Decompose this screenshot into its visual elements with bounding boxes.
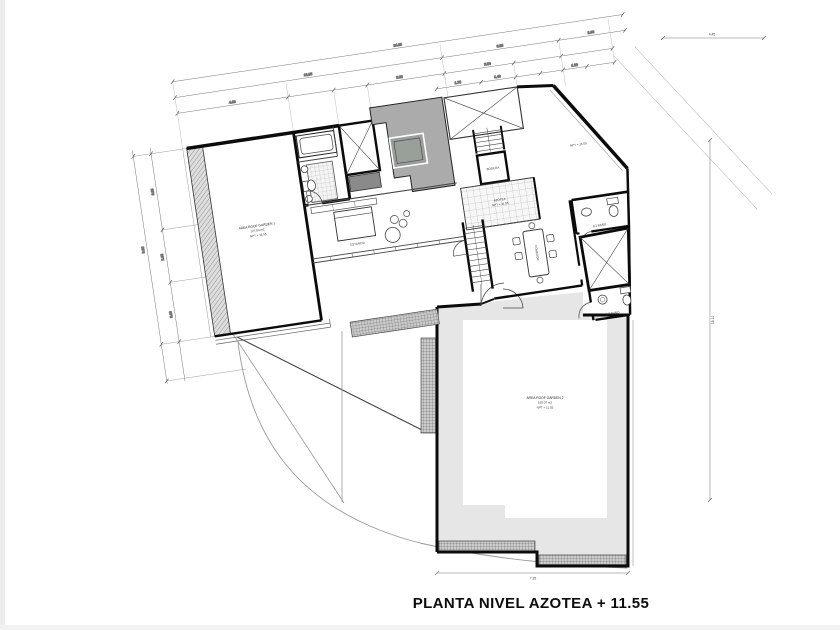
stairs-central: [449, 219, 493, 293]
hatch-strip-top: [350, 309, 439, 337]
dimension-lines-left: 9.30 3.85 2.65 3.00: [126, 139, 246, 385]
sink-4: [597, 294, 607, 304]
toilet-2: [608, 205, 619, 217]
dim-top-5: 4.60: [229, 100, 236, 105]
azotea-tiled: AZOTEA NPT + 11.55: [461, 177, 540, 229]
roof-garden-2-area: 165.07 m2: [538, 401, 553, 405]
hatch-strip-bottom-right: [539, 555, 626, 565]
drawing-sheet: AREA ROOF GARDEN 2 165.07 m2 NPT + 11.55…: [0, 0, 840, 630]
drawing-title: PLANTA NIVEL AZOTEA + 11.55: [413, 595, 650, 612]
bodega-room: BODEGA: [477, 151, 509, 184]
dim-top-2: 12.85: [304, 72, 313, 77]
shaft-a: [339, 121, 383, 192]
dim-top-4: 2.60: [587, 30, 594, 35]
stool-3: [403, 210, 410, 217]
skylight-planter: [370, 97, 455, 196]
dim-left-2: 3.85: [150, 188, 155, 195]
roof-garden-2-level: NPT + 11.55: [537, 406, 554, 410]
dimension-lines-right: 18.10: [708, 138, 715, 502]
dimension-lines-top-right: 4.45: [614, 33, 772, 210]
hatch-strip-left: [421, 338, 436, 433]
chair-6: [537, 277, 544, 284]
sink-3: [581, 207, 592, 216]
louver-band: [187, 146, 231, 336]
dim-top-overall: 24.25: [393, 42, 402, 47]
stool-1: [390, 215, 399, 224]
floor-plan: AREA ROOF GARDEN 2 165.07 m2 NPT + 11.55…: [0, 0, 840, 630]
dim-left-4: 3.00: [169, 311, 174, 318]
half-bath-top-label: 1/2 BAÑO: [592, 221, 607, 228]
diagonal-wall: [553, 77, 627, 178]
dim-top-3: 5.95: [496, 44, 503, 49]
hatch-strip-bottom-left: [439, 541, 535, 551]
void-right: [580, 228, 637, 291]
dim-left-3: 2.65: [160, 254, 165, 261]
sheet-edge-left: [0, 0, 5, 630]
stool-2: [399, 219, 408, 228]
bed: [334, 207, 376, 241]
dim-left-overall: 9.30: [141, 246, 146, 253]
dim-top-10: 1.20: [571, 63, 578, 68]
chair-5: [528, 222, 535, 229]
dim-top-9: 1.40: [494, 74, 501, 79]
dim-right-overall: 18.10: [711, 316, 715, 325]
roof-garden-2: AREA ROOF GARDEN 2 165.07 m2 NPT + 11.55…: [421, 283, 633, 581]
sheet-edge-bottom: [0, 625, 840, 630]
roof-garden-2-name: AREA ROOF GARDEN 2: [526, 396, 563, 400]
round-table: [384, 226, 401, 243]
top-right-level: NPT + 11.55: [570, 141, 587, 147]
void-top: [444, 87, 523, 139]
chair-3: [546, 234, 554, 242]
dim-top-8: 1.75: [454, 80, 461, 85]
chair-2: [515, 252, 523, 260]
estancia-label: ESTANCIA: [350, 241, 365, 247]
parapet-lines: [215, 319, 331, 344]
dim-top-6: 3.25: [396, 75, 403, 80]
dim-top-7: 2.90: [484, 62, 491, 67]
dim-top-right: 4.45: [709, 33, 716, 37]
chair-1: [512, 237, 520, 245]
dimension-bottom-value: 7.25: [530, 577, 537, 581]
chair-4: [549, 250, 557, 258]
